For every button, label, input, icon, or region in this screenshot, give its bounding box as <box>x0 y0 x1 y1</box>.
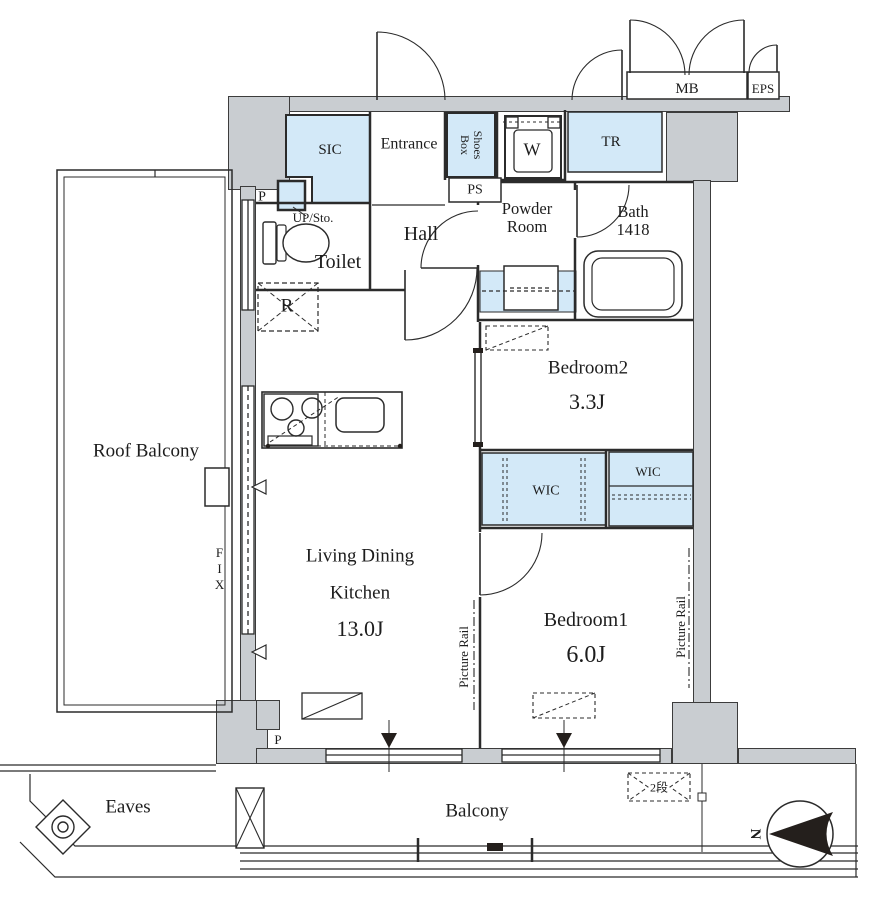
label-powder-line2: Room <box>502 218 552 236</box>
label-roof-balcony: Roof Balcony <box>93 442 199 463</box>
label-mb: MB <box>675 81 698 97</box>
label-bath-line1: Bath <box>617 203 650 221</box>
label-ldk-size: 13.0J <box>336 617 383 641</box>
label-pillar-bottom: P <box>274 733 281 747</box>
label-ps: PS <box>467 182 483 197</box>
floorplan: MB EPS SIC Entrance Shoes Box W PS TR Po… <box>0 0 894 900</box>
label-fridge: R <box>281 297 294 318</box>
label-picture-rail-left: Picture Rail <box>457 626 471 688</box>
label-balcony: Balcony <box>445 802 508 823</box>
label-picture-rail-right: Picture Rail <box>674 596 688 658</box>
label-bedroom2: Bedroom2 <box>548 359 628 380</box>
label-powder-line1: Powder <box>502 200 552 218</box>
label-entrance: Entrance <box>381 135 438 152</box>
label-bedroom2-size: 3.3J <box>569 390 605 414</box>
label-bedroom1: Bedroom1 <box>544 610 628 632</box>
entry-direction-markers <box>381 720 572 772</box>
label-washer: W <box>524 140 541 159</box>
label-bath: Bath 1418 <box>617 203 650 239</box>
label-step-note: 2段 <box>650 782 668 795</box>
label-eps: EPS <box>752 82 774 96</box>
label-shoes-box: Shoes Box <box>458 131 484 160</box>
label-hall: Hall <box>404 224 438 246</box>
label-shoes-line1: Shoes <box>471 131 484 160</box>
bathtub <box>584 251 682 317</box>
balcony-partition <box>236 788 264 848</box>
kitchen-counter <box>262 392 402 448</box>
label-bedroom1-size: 6.0J <box>566 643 605 669</box>
label-upsto: UP/Sto. <box>293 211 334 225</box>
drain-inner-circle <box>58 822 68 832</box>
label-fix: FIX <box>212 545 226 593</box>
upsto-storage-fill <box>278 181 305 210</box>
label-sic: SIC <box>318 142 341 158</box>
label-ldk-line1: Living Dining <box>306 547 414 568</box>
ac-unit-symbol <box>302 693 362 719</box>
label-pillar-top: P <box>258 189 266 204</box>
label-compass-north: N <box>747 829 763 840</box>
label-wic-left: WIC <box>532 483 559 498</box>
label-toilet: Toilet <box>315 252 361 274</box>
label-bath-line2: 1418 <box>617 221 650 239</box>
label-tr: TR <box>601 134 620 150</box>
balcony-rails <box>20 764 858 877</box>
label-powder-room: Powder Room <box>502 200 552 236</box>
compass <box>767 801 833 867</box>
label-ldk-line2: Kitchen <box>330 584 390 605</box>
label-eaves: Eaves <box>105 798 150 819</box>
label-wic-right: WIC <box>635 465 660 479</box>
bedroom2-sliding-door <box>473 348 483 447</box>
equipment-box <box>205 468 229 506</box>
label-shoes-line2: Box <box>458 131 471 160</box>
